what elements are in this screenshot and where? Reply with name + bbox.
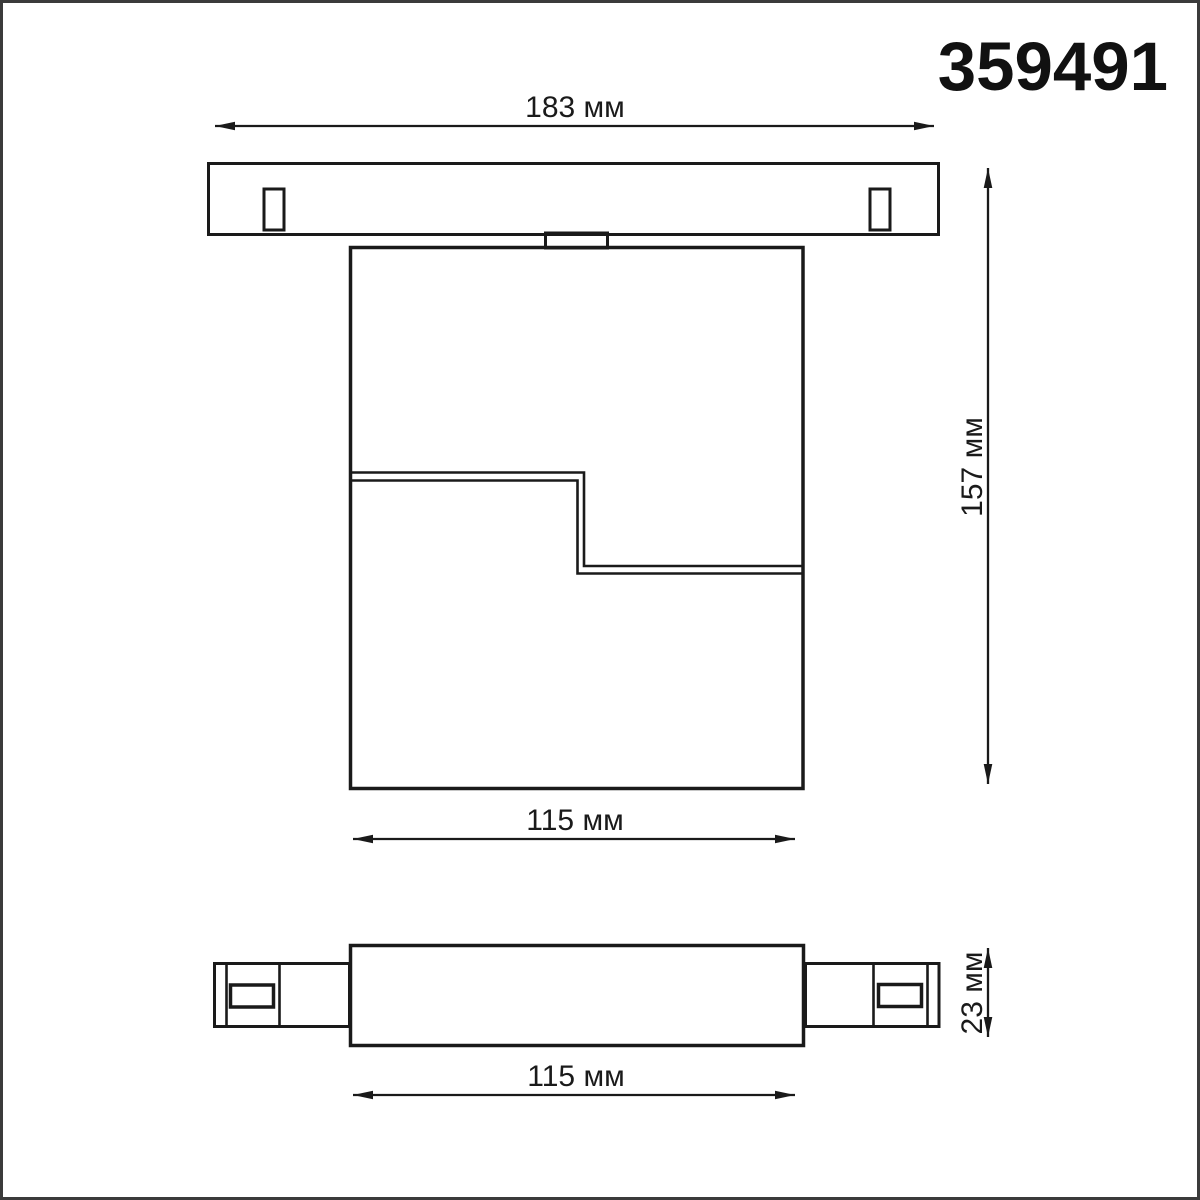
track-slot-left bbox=[264, 189, 284, 230]
dimension-track-width: 183 мм bbox=[215, 91, 934, 126]
track-slot-right bbox=[870, 189, 890, 230]
dimension-body-width: 115 мм bbox=[353, 804, 795, 839]
technical-drawing-canvas: 359491 bbox=[0, 0, 1200, 1200]
dimension-body-width-label: 115 мм bbox=[526, 804, 623, 837]
dimension-track-width-label: 183 мм bbox=[525, 91, 625, 124]
dimension-profile-height: 23 мм bbox=[956, 948, 989, 1037]
connector-left-contact bbox=[231, 985, 274, 1007]
drawing-page: 359491 bbox=[0, 0, 1200, 1200]
track-bar bbox=[209, 164, 939, 235]
dimension-profile-height-label: 23 мм bbox=[956, 952, 989, 1035]
front-view bbox=[209, 164, 939, 789]
connector-right bbox=[806, 962, 940, 1028]
product-code: 359491 bbox=[938, 28, 1168, 105]
body-seam-inner bbox=[350, 481, 803, 574]
page-border bbox=[2, 2, 1199, 1199]
side-view bbox=[215, 946, 940, 1046]
dimension-body-length-label: 115 мм bbox=[527, 1060, 624, 1093]
dimension-body-length: 115 мм bbox=[353, 1060, 795, 1095]
connector-left-housing bbox=[215, 964, 350, 1027]
dimension-overall-height: 157 мм bbox=[956, 168, 989, 784]
connector-right-contact bbox=[879, 985, 922, 1007]
connector-left bbox=[215, 962, 350, 1028]
dimension-overall-height-label: 157 мм bbox=[956, 417, 989, 517]
side-body bbox=[351, 946, 804, 1046]
